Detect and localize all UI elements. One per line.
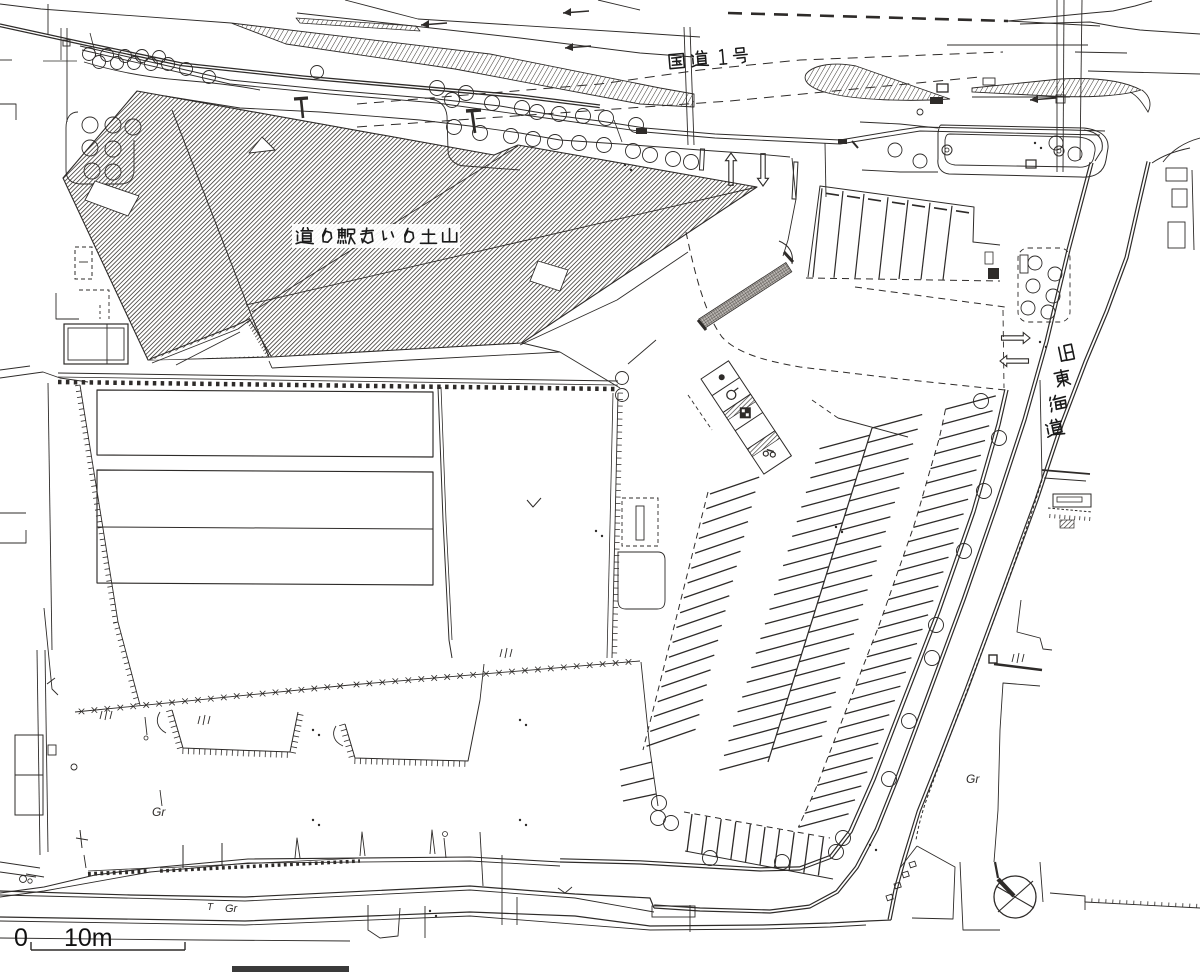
svg-text:T: T <box>207 902 214 913</box>
svg-text:Gr: Gr <box>966 772 980 786</box>
svg-text:0: 0 <box>14 924 28 952</box>
svg-text:Gr: Gr <box>225 903 239 915</box>
svg-text:Gr: Gr <box>152 805 166 819</box>
svg-text:10m: 10m <box>64 924 113 952</box>
